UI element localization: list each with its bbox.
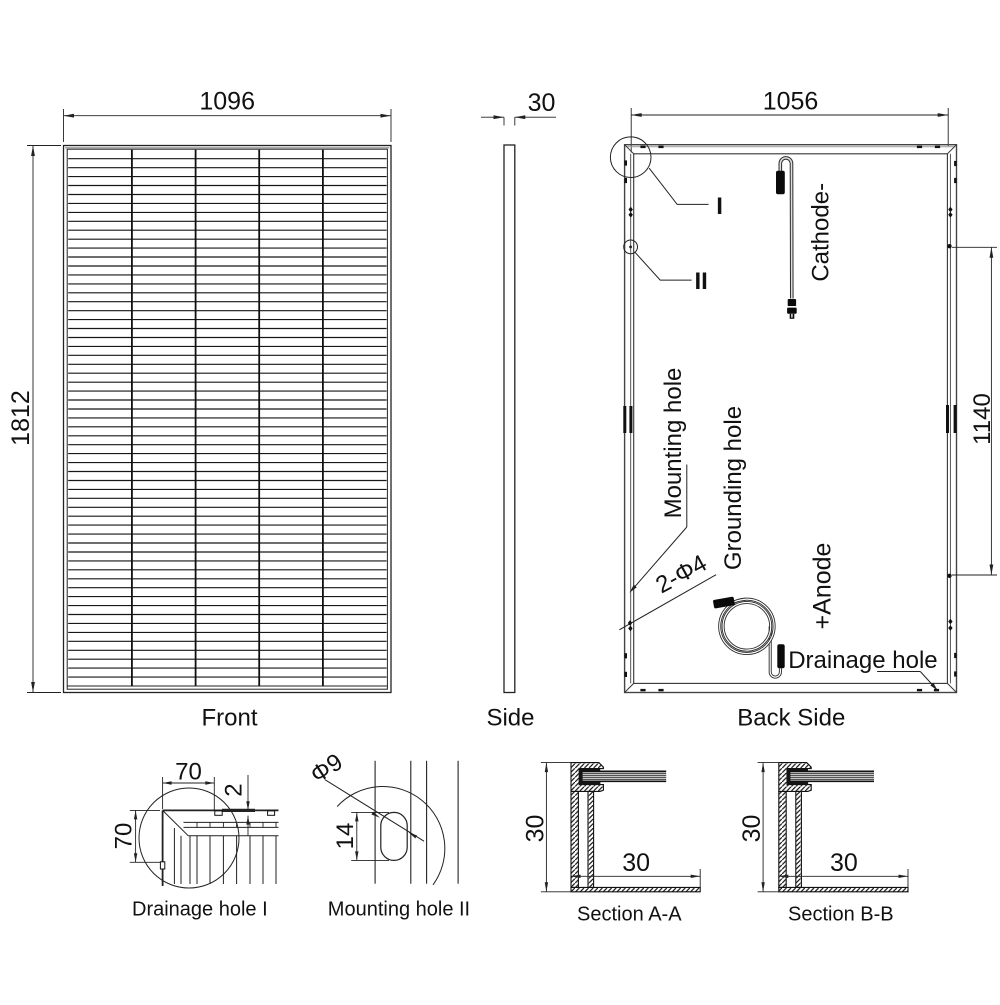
svg-text:1096: 1096 (199, 88, 255, 116)
svg-text:Front: Front (201, 705, 257, 732)
svg-text:Mounting hole: Mounting hole (660, 368, 687, 519)
svg-text:1056: 1056 (763, 88, 819, 116)
svg-text:30: 30 (738, 815, 766, 843)
svg-text:Back Side: Back Side (737, 705, 845, 732)
svg-text:Section B-B: Section B-B (788, 904, 894, 926)
svg-text:Grounding hole: Grounding hole (720, 406, 747, 570)
svg-text:Section A-A: Section A-A (577, 904, 682, 926)
svg-text:30: 30 (830, 849, 858, 877)
svg-text:Mounting hole II: Mounting hole II (328, 899, 470, 921)
svg-text:I: I (716, 193, 723, 220)
svg-text:Drainage hole I: Drainage hole I (132, 899, 268, 921)
svg-text:14: 14 (332, 823, 359, 850)
svg-text:1812: 1812 (7, 390, 35, 446)
svg-text:30: 30 (528, 89, 556, 117)
svg-text:30: 30 (522, 815, 550, 843)
svg-text:Cathode-: Cathode- (808, 183, 835, 282)
svg-text:Drainage hole: Drainage hole (788, 647, 937, 674)
svg-text:Φ9: Φ9 (306, 749, 348, 789)
svg-text:II: II (695, 268, 708, 295)
svg-text:70: 70 (175, 759, 202, 786)
svg-text:Side: Side (486, 705, 534, 732)
svg-text:+Anode: +Anode (809, 543, 837, 630)
svg-text:30: 30 (622, 849, 650, 877)
svg-text:1140: 1140 (969, 393, 996, 445)
svg-text:70: 70 (111, 823, 138, 850)
svg-text:2: 2 (221, 783, 248, 796)
